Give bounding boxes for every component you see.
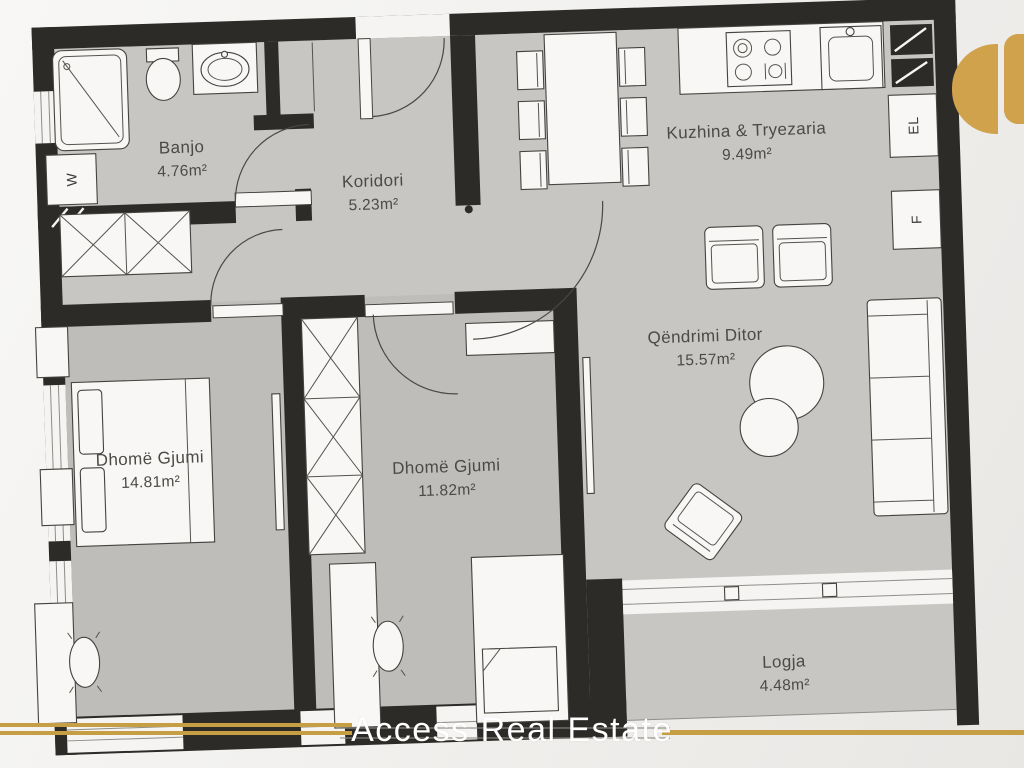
- window-mullion: [724, 587, 738, 600]
- armchair-1: [705, 226, 765, 290]
- watermark-text: Access Real Estate: [0, 711, 1024, 750]
- toilet: [145, 48, 181, 101]
- sofa: [867, 298, 948, 516]
- room-label-logja: Logja: [762, 651, 806, 671]
- room-label-banjo: Banjo: [159, 137, 205, 157]
- wardrobe-bedroom2: [301, 317, 365, 555]
- floorplan-photo: Banjo 4.76m² Koridori 5.23m² Kuzhina & T…: [0, 0, 1024, 768]
- kitchen-sink: [820, 26, 883, 90]
- wall-niche-stub: [264, 42, 281, 123]
- plan-rotated-group: Banjo 4.76m² Koridori 5.23m² Kuzhina & T…: [16, 0, 980, 756]
- fridge-label: F: [908, 215, 924, 225]
- dining-table: [544, 32, 621, 184]
- sink-vanity: [192, 42, 258, 94]
- armchair-2: [772, 223, 832, 287]
- room-label-qendrimi: Qëndrimi Ditor: [647, 325, 763, 348]
- wall-niche-bottom: [254, 113, 314, 130]
- single-bed: [471, 554, 568, 723]
- room-area-dhome-gjumi-2: 11.82m²: [418, 481, 476, 500]
- wardrobe-bedroom1: [60, 211, 192, 277]
- access-logo-icon-right: [1004, 34, 1024, 124]
- room-area-dhome-gjumi-1: 14.81m²: [121, 473, 180, 492]
- room-area-kuzhina: 9.49m²: [722, 145, 773, 164]
- room-label-dhome-gjumi-1: Dhomë Gjumi: [95, 447, 204, 470]
- stove: [726, 31, 792, 87]
- room-label-dhome-gjumi-2: Dhomë Gjumi: [392, 455, 501, 478]
- window-mullion: [822, 583, 836, 596]
- shelf-bedroom2: [466, 321, 555, 356]
- wall-bedroom2-top-right: [455, 289, 556, 314]
- washer-label: W: [63, 172, 79, 187]
- wall-bedroom2-top-left: [301, 295, 366, 319]
- room-label-koridori: Koridori: [342, 170, 404, 191]
- room-area-banjo: 4.76m²: [157, 162, 208, 181]
- room-area-koridori: 5.23m²: [348, 196, 399, 215]
- nightstand-1: [35, 327, 69, 378]
- electric-label: EL: [905, 116, 922, 135]
- floor-plan-drawing: Banjo 4.76m² Koridori 5.23m² Kuzhina & T…: [0, 0, 1024, 768]
- room-area-logja: 4.48m²: [759, 676, 810, 695]
- nightstand-2: [40, 469, 74, 526]
- room-area-qendrimi: 15.57m²: [676, 351, 735, 370]
- shower: [52, 49, 129, 151]
